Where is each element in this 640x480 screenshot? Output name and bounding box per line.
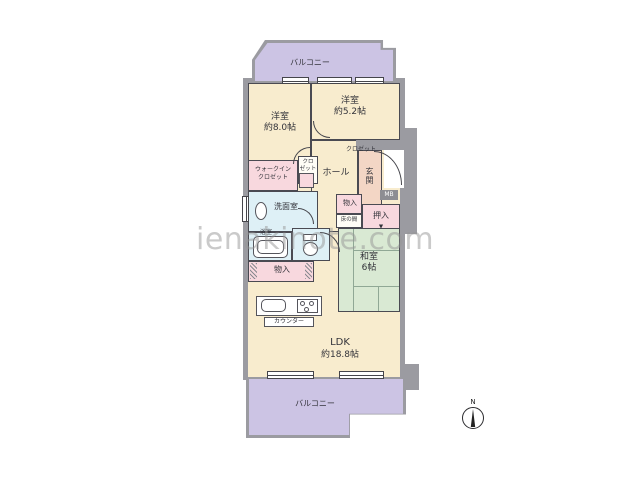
window-top-3: [355, 77, 384, 84]
burner-icon: [304, 307, 309, 312]
genkan-label: 玄関: [364, 158, 374, 194]
wall-hatch: [250, 263, 257, 279]
watermark-text: ienakinote.com: [196, 222, 446, 257]
floorplan-canvas: MB バルコニー 洋室 約8.0帖 洋室 約5.2帖 クロゼット ウォークイン …: [0, 0, 640, 480]
kitchen-sink-icon: [261, 299, 286, 312]
vanity-icon: [299, 173, 314, 188]
bedroom-right-label: 洋室 約5.2帖: [318, 96, 382, 119]
window-left: [242, 196, 249, 222]
bedroom-left-size: 約8.0帖: [250, 123, 310, 134]
storage-hall-label: 物入: [338, 199, 362, 208]
oshiire-label: 押入: [366, 211, 396, 221]
bedroom-left-label: 洋室 約8.0帖: [250, 112, 310, 135]
walkin-line1: ウォークイン: [250, 166, 296, 174]
window-top-2: [317, 77, 352, 84]
bedroom-left-name: 洋室: [250, 112, 310, 123]
burner-icon: [300, 301, 305, 306]
burner-icon: [309, 301, 314, 306]
window-bottom-2: [339, 371, 384, 379]
small-closet-line1: クロ: [299, 159, 317, 166]
balcony-bottom-label: バルコニー: [280, 399, 350, 409]
bedroom-right-size: 約5.2帖: [318, 107, 382, 118]
washbasin-icon: [255, 202, 267, 220]
storage-ldk-label: 物入: [266, 265, 298, 275]
walkin-line2: クロゼット: [250, 174, 296, 182]
compass-icon: N: [458, 398, 488, 436]
bedroom-right-name: 洋室: [318, 96, 382, 107]
hall-label: ホール: [315, 168, 357, 179]
tatami-line: [353, 286, 399, 287]
washitsu-size: 6帖: [344, 263, 394, 274]
washroom-label: 洗面室: [268, 202, 304, 212]
closet-right-label: クロゼット: [340, 146, 382, 154]
ldk-name: LDK: [310, 337, 370, 350]
wall-hatch: [305, 263, 312, 279]
balcony-top-label: バルコニー: [270, 58, 350, 68]
counter-label: カウンター: [264, 317, 314, 327]
outer-wall-entry: [403, 128, 417, 234]
walkin-closet-label: ウォークイン クロゼット: [250, 166, 296, 181]
tatami-line: [378, 286, 379, 311]
ldk-size: 約18.8帖: [310, 350, 370, 361]
ldk-label: LDK 約18.8帖: [310, 337, 370, 361]
meter-box: MB: [380, 190, 398, 200]
compass-north-label: N: [470, 398, 475, 406]
window-top-1: [282, 77, 309, 84]
window-bottom-1: [267, 371, 314, 379]
